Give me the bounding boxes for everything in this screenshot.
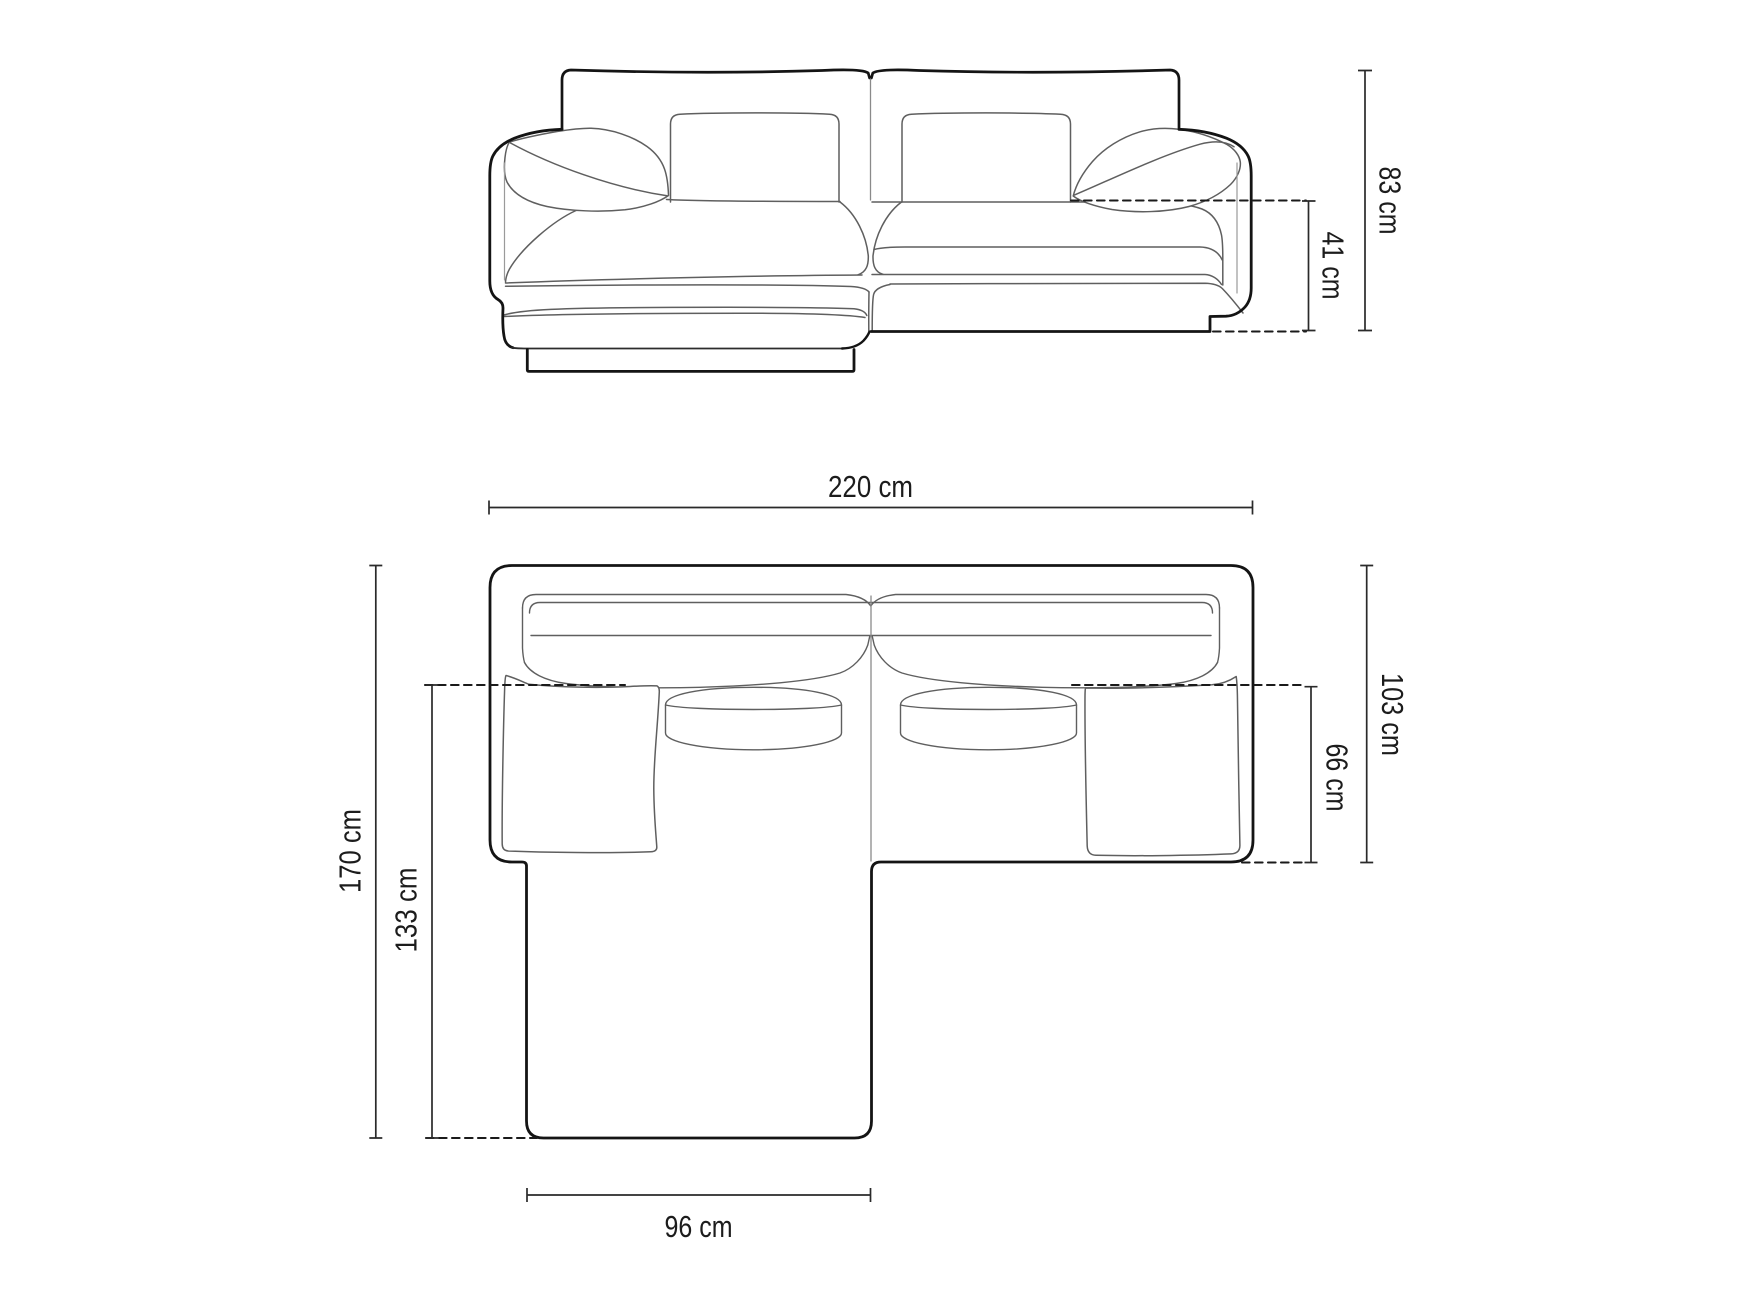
svg-text:133 cm: 133 cm — [389, 868, 424, 953]
svg-text:96 cm: 96 cm — [665, 1209, 733, 1244]
svg-text:66 cm: 66 cm — [1320, 744, 1355, 812]
svg-text:83 cm: 83 cm — [1373, 167, 1408, 235]
svg-text:170 cm: 170 cm — [333, 809, 368, 893]
svg-text:220 cm: 220 cm — [828, 469, 913, 504]
svg-text:41 cm: 41 cm — [1316, 232, 1351, 300]
svg-text:103 cm: 103 cm — [1375, 673, 1410, 756]
